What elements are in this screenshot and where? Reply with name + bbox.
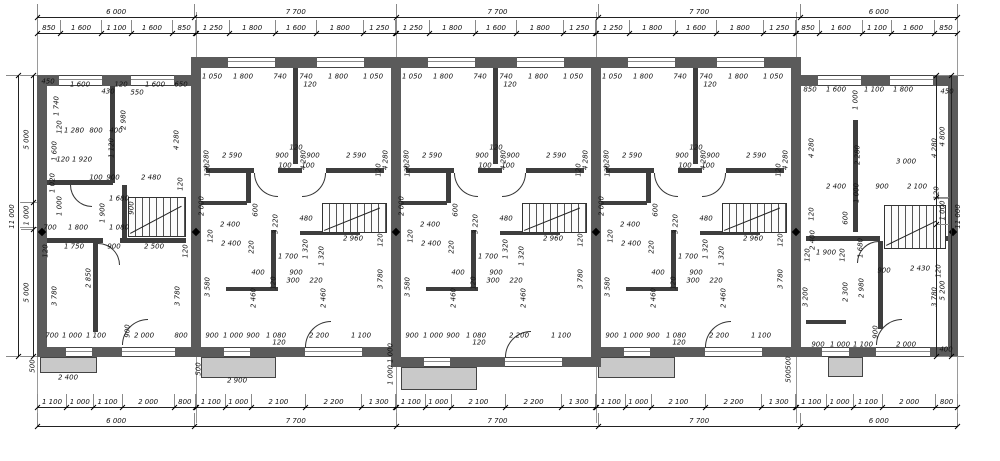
dim-segment: 1 800 bbox=[516, 20, 562, 33]
dim-segment: 7 700 bbox=[598, 413, 800, 426]
dim-label: 120 bbox=[205, 163, 212, 176]
dim-chain-top-unit2: 1 2501 8001 6001 8001 250 bbox=[196, 20, 396, 34]
dim-label: 3 580 bbox=[405, 277, 412, 297]
dim-label: 2 430 bbox=[910, 266, 930, 273]
dim-label: 120 bbox=[303, 82, 316, 89]
dim-label: 900 bbox=[475, 153, 488, 160]
dim-label: 800 bbox=[89, 128, 102, 135]
dim-label: 480 bbox=[699, 216, 712, 223]
dim-label: 900 bbox=[689, 270, 702, 277]
dim-label: 2 960 bbox=[543, 236, 563, 243]
dim-segment: 1 800 bbox=[316, 20, 362, 33]
dim-label: 600 bbox=[253, 203, 260, 216]
dim-label: 1 320 bbox=[319, 246, 326, 266]
dim-segment: 1 250 bbox=[363, 20, 397, 33]
dim-segment: 2 200 bbox=[305, 394, 361, 407]
dim-label: 2 400 bbox=[420, 222, 440, 229]
dim-label: 1 700 bbox=[678, 254, 698, 261]
dim-label: 500 bbox=[786, 369, 793, 382]
dim-segment: 7 700 bbox=[598, 4, 800, 17]
dim-segment: 1 100 bbox=[596, 394, 625, 407]
dim-label: 1 800 bbox=[233, 74, 253, 81]
dim-label: 900 bbox=[706, 153, 719, 160]
dim-label: 450 bbox=[41, 79, 54, 86]
dim-label: 2 460 bbox=[251, 288, 258, 308]
dim-segment: 850 bbox=[37, 20, 60, 33]
dim-label: 740 bbox=[473, 74, 486, 81]
dim-label: 1 680 bbox=[109, 196, 129, 203]
dim-label: 900 bbox=[107, 244, 120, 251]
door-arc bbox=[254, 173, 278, 197]
dim-label: 2 460 bbox=[451, 288, 458, 308]
dim-label: 120 bbox=[778, 233, 785, 246]
dim-label: 1 000 bbox=[62, 333, 82, 340]
dim-label: 2 400 bbox=[220, 222, 240, 229]
dim-label: 1 900 bbox=[816, 250, 836, 257]
dim-label: 900 bbox=[605, 333, 618, 340]
dim-segment: 1 100 bbox=[396, 394, 425, 407]
dim-label: 600 bbox=[843, 211, 850, 224]
dim-label: 1 100 bbox=[351, 333, 371, 340]
dim-label: 2 400 bbox=[826, 184, 846, 191]
dim-label: 1 800 bbox=[68, 225, 88, 232]
dim-label: 120 bbox=[809, 207, 816, 220]
dim-label: 120 bbox=[576, 163, 583, 176]
dim-label: 300 bbox=[486, 278, 499, 285]
dim-label: 2 000 bbox=[134, 333, 154, 340]
dim-label: 120 bbox=[405, 163, 412, 176]
dim-label: 450 bbox=[940, 89, 953, 96]
dim-segment: 1 600 bbox=[819, 20, 862, 33]
dim-label: 1 320 bbox=[503, 239, 510, 259]
dim-label: 2 460 bbox=[721, 288, 728, 308]
dim-label: 2 500 bbox=[144, 244, 164, 251]
dim-label: 120 bbox=[503, 82, 516, 89]
dim-label: 3 580 bbox=[605, 277, 612, 297]
dim-label: 900 bbox=[129, 201, 136, 214]
dim-label: 1 000 bbox=[853, 90, 860, 110]
door-arc bbox=[654, 173, 678, 197]
porch-unit3 bbox=[401, 367, 477, 390]
dim-label: 400 bbox=[939, 347, 952, 354]
dim-label: 120 bbox=[408, 229, 415, 242]
wall-top-mid bbox=[196, 57, 796, 68]
dim-label: 220 bbox=[249, 240, 256, 253]
dim-label: 1 100 bbox=[853, 342, 873, 349]
porch-unit1 bbox=[40, 357, 97, 373]
dim-label: 400 bbox=[451, 270, 464, 277]
dim-label: 2 590 bbox=[422, 153, 442, 160]
dim-label: 2 400 bbox=[620, 222, 640, 229]
dim-label: 3 580 bbox=[205, 277, 212, 297]
dim-label: 1 000 bbox=[830, 342, 850, 349]
dim-label: 120 bbox=[605, 163, 612, 176]
dim-label: 480 bbox=[299, 216, 312, 223]
rear-door bbox=[705, 347, 762, 357]
dim-label: 1 800 bbox=[728, 74, 748, 81]
dim-segment: 1 300 bbox=[761, 394, 796, 407]
dim-label: 1 700 bbox=[478, 254, 498, 261]
dim-label: 1 100 bbox=[864, 87, 884, 94]
dim-segment: 7 700 bbox=[194, 4, 396, 17]
dim-label: 220 bbox=[309, 278, 322, 285]
dim-label: 1 000 bbox=[57, 196, 64, 216]
dim-label: 900 bbox=[446, 333, 459, 340]
dim-segment: 1 250 bbox=[396, 20, 429, 33]
dim-label: 2 400 bbox=[621, 241, 641, 248]
window bbox=[317, 57, 364, 68]
dim-label: 700 bbox=[43, 225, 56, 232]
dim-label: 4 280 bbox=[174, 130, 181, 150]
dim-segment: 7 700 bbox=[396, 413, 598, 426]
dim-label: 1 120 bbox=[109, 138, 116, 158]
dim-label: 3 780 bbox=[578, 269, 585, 289]
dim-label: 120 bbox=[689, 145, 702, 152]
dim-label: 2 850 bbox=[86, 268, 93, 288]
dim-segment: 1 100 bbox=[101, 20, 130, 33]
dim-label: 2 460 bbox=[321, 288, 328, 308]
door-arc bbox=[70, 185, 92, 207]
staircase-unit1 bbox=[128, 197, 186, 237]
window bbox=[717, 57, 764, 68]
dim-label: 900 bbox=[675, 153, 688, 160]
partition bbox=[806, 236, 880, 241]
dim-label: 100 bbox=[478, 163, 491, 170]
dim-label: 900 bbox=[306, 153, 319, 160]
dim-segment: 1 800 bbox=[229, 20, 275, 33]
dim-label: 2 590 bbox=[346, 153, 366, 160]
partition bbox=[246, 173, 251, 203]
dim-chain-right-inner: 4 8001 0005 200 bbox=[936, 75, 949, 357]
dim-label: 120 bbox=[472, 340, 485, 347]
dim-segment: 6 000 bbox=[800, 413, 958, 426]
dim-label: 500 bbox=[30, 359, 37, 372]
dim-label: 120 bbox=[776, 163, 783, 176]
dim-segment: 1 600 bbox=[131, 20, 173, 33]
dim-segment: 1 600 bbox=[475, 20, 516, 33]
dim-label: 1 680 bbox=[858, 238, 865, 258]
dim-label: 400 bbox=[251, 270, 264, 277]
dim-label: 120 bbox=[936, 264, 943, 277]
dim-label: 740 bbox=[299, 74, 312, 81]
dim-label: 600 bbox=[453, 203, 460, 216]
dim-segment: 5 000 bbox=[21, 229, 33, 357]
partition bbox=[646, 173, 651, 203]
dim-segment: 1 000 bbox=[21, 202, 33, 228]
dim-label: 1 000 bbox=[423, 333, 443, 340]
dim-label: 2 000 bbox=[199, 196, 206, 216]
dim-label: 1 050 bbox=[363, 74, 383, 81]
dim-label: 900 bbox=[106, 175, 119, 182]
dim-label: 120 bbox=[608, 229, 615, 242]
dim-label: 900 bbox=[506, 153, 519, 160]
dim-label: 2 400 bbox=[221, 241, 241, 248]
dim-segment: 1 300 bbox=[561, 394, 596, 407]
window bbox=[228, 57, 275, 68]
dim-label: 100 bbox=[701, 163, 714, 170]
dim-label: 1 900 bbox=[100, 203, 107, 223]
rear-door bbox=[305, 347, 362, 357]
dim-label: 120 bbox=[272, 340, 285, 347]
dim-label: 2 400 bbox=[421, 241, 441, 248]
dim-label: 900 bbox=[289, 270, 302, 277]
dim-label: 2 590 bbox=[622, 153, 642, 160]
dim-label: 100 bbox=[89, 175, 102, 182]
dim-label: 1 600 bbox=[70, 82, 90, 89]
dim-label: 900 bbox=[646, 333, 659, 340]
dim-label: 120 bbox=[378, 233, 385, 246]
dim-label: 400 bbox=[109, 128, 122, 135]
dim-segment: 850 bbox=[934, 20, 958, 33]
dim-label: 550 bbox=[130, 90, 143, 97]
partition bbox=[853, 120, 858, 232]
dim-label: 2 200 bbox=[309, 333, 329, 340]
dim-segment: 1 300 bbox=[361, 394, 396, 407]
rear-door bbox=[505, 357, 562, 367]
partition bbox=[806, 320, 846, 324]
dim-label: 2 000 bbox=[599, 196, 606, 216]
dim-label: 3 200 bbox=[803, 287, 810, 307]
dim-chain-bottom-unit1: 1 1001 0001 1002 000800 bbox=[37, 394, 196, 408]
dim-label: 2 300 bbox=[843, 282, 850, 302]
dim-label: 1 920 bbox=[72, 157, 92, 164]
window bbox=[628, 57, 675, 68]
dim-label: 3 780 bbox=[175, 286, 182, 306]
dim-segment: 1 250 bbox=[196, 20, 229, 33]
dim-label: 740 bbox=[273, 74, 286, 81]
dim-label: 1 320 bbox=[703, 239, 710, 259]
dim-label: 2 960 bbox=[743, 236, 763, 243]
dim-label: 1 000 bbox=[854, 183, 861, 203]
dim-label: 900 bbox=[246, 333, 259, 340]
dim-label: 2 280 bbox=[855, 145, 862, 165]
dim-label: 220 bbox=[649, 240, 656, 253]
dim-label: 500 bbox=[786, 356, 793, 369]
dim-segment: 800 bbox=[174, 394, 196, 407]
dim-label: 900 bbox=[125, 324, 132, 337]
rear-window bbox=[224, 347, 250, 357]
floor-plan-drawing: 6 0007 7007 7007 7006 000 8501 6001 1001… bbox=[0, 0, 1000, 461]
door-arc bbox=[302, 173, 326, 197]
dim-label: 1 020 bbox=[50, 173, 57, 193]
window bbox=[890, 75, 933, 86]
dim-chain-top-unit4: 1 2501 8001 6001 8001 250 bbox=[596, 20, 796, 34]
dim-label: 3 780 bbox=[778, 269, 785, 289]
dim-segment: 6 000 bbox=[37, 4, 194, 17]
dim-label: 4 280 bbox=[809, 138, 816, 158]
dim-label: 2 200 bbox=[709, 333, 729, 340]
dim-label: 1 100 bbox=[86, 333, 106, 340]
dim-label: 4 280 bbox=[932, 138, 939, 158]
dim-label: 120 bbox=[57, 120, 64, 133]
dim-segment: 1 100 bbox=[196, 394, 225, 407]
dim-label: 3 220 bbox=[273, 214, 280, 234]
dim-label: 1 050 bbox=[402, 74, 422, 81]
dim-label: 120 bbox=[271, 276, 278, 289]
dim-label: 120 bbox=[56, 157, 69, 164]
porch-unit4 bbox=[598, 357, 675, 378]
dim-segment: 1 600 bbox=[891, 20, 934, 33]
dim-label: 700 bbox=[45, 333, 58, 340]
dim-segment: 2 200 bbox=[705, 394, 761, 407]
dim-label: 220 bbox=[449, 240, 456, 253]
dim-label: 1 600 bbox=[145, 82, 165, 89]
dim-segment: 2 000 bbox=[882, 394, 935, 407]
porch-unit2 bbox=[201, 357, 276, 378]
dim-segment: 2 200 bbox=[505, 394, 561, 407]
dim-segment: 1 000 bbox=[425, 394, 451, 407]
dim-label: 900 bbox=[877, 268, 890, 275]
dim-segment: 850 bbox=[172, 20, 196, 33]
dim-segment: 1 000 bbox=[826, 394, 853, 407]
dim-label: 1 050 bbox=[563, 74, 583, 81]
dim-label: 900 bbox=[405, 333, 418, 340]
wall-left bbox=[37, 75, 47, 357]
dim-label: 1 080 bbox=[109, 225, 129, 232]
dim-label: 2 400 bbox=[810, 230, 817, 250]
dim-label: 120 bbox=[43, 244, 50, 257]
dim-label: 4 280 bbox=[383, 150, 390, 170]
door-arc bbox=[502, 173, 526, 197]
dim-chain-right-outer: 11 000 bbox=[951, 75, 964, 357]
dim-label: 2 960 bbox=[343, 236, 363, 243]
dim-label: 1 320 bbox=[519, 246, 526, 266]
dim-segment: 1 600 bbox=[60, 20, 102, 33]
dim-label: 1 050 bbox=[602, 74, 622, 81]
dim-label: 1 700 bbox=[278, 254, 298, 261]
partition bbox=[401, 201, 447, 205]
dim-chain-bottom-unit3: 1 1001 0002 1002 2001 300 bbox=[396, 394, 596, 408]
dim-label: 4 280 bbox=[783, 150, 790, 170]
dim-label: 2 590 bbox=[222, 153, 242, 160]
dim-label: 2 000 bbox=[399, 196, 406, 216]
dim-label: 1 100 bbox=[751, 333, 771, 340]
dim-label: 120 bbox=[672, 340, 685, 347]
partition bbox=[201, 201, 247, 205]
window bbox=[428, 57, 475, 68]
dim-chain-top-totals: 6 0007 7007 7007 7006 000 bbox=[37, 4, 958, 18]
dim-label: 120 bbox=[840, 248, 847, 261]
dim-label: 3 780 bbox=[932, 287, 939, 307]
dim-label: 2 460 bbox=[651, 288, 658, 308]
dim-label: 120 bbox=[289, 145, 302, 152]
dim-chain-top-unit1: 8501 6001 1001 600850 bbox=[37, 20, 196, 34]
dim-label: 1 320 bbox=[303, 239, 310, 259]
dim-segment: 2 100 bbox=[451, 394, 505, 407]
dim-segment: 2 100 bbox=[251, 394, 305, 407]
dim-label: 1 800 bbox=[893, 87, 913, 94]
dim-label: 120 bbox=[183, 244, 190, 257]
dim-segment: 1 000 bbox=[937, 197, 949, 223]
dim-label: 900 bbox=[275, 153, 288, 160]
dim-label: 120 bbox=[934, 186, 941, 199]
dim-label: 100 bbox=[278, 163, 291, 170]
dim-label: 100 bbox=[678, 163, 691, 170]
dim-label: 1 100 bbox=[551, 333, 571, 340]
partition bbox=[601, 201, 647, 205]
rear-window bbox=[66, 347, 92, 357]
partition bbox=[446, 173, 451, 203]
dim-segment: 1 250 bbox=[596, 20, 629, 33]
dim-segment: 1 100 bbox=[37, 394, 66, 407]
dim-label: 120 bbox=[178, 177, 185, 190]
dim-label: 2 480 bbox=[141, 175, 161, 182]
dim-segment: 1 100 bbox=[796, 394, 826, 407]
dim-label: 900 bbox=[811, 342, 824, 349]
window bbox=[818, 75, 861, 86]
dim-label: 1 280 bbox=[64, 128, 84, 135]
dim-label: 1 050 bbox=[763, 74, 783, 81]
dim-label: 220 bbox=[509, 278, 522, 285]
dim-chain-left-outer: 11 000 bbox=[6, 75, 19, 357]
dim-segment: 1 800 bbox=[716, 20, 762, 33]
dim-label: 900 bbox=[489, 270, 502, 277]
partition bbox=[110, 86, 115, 183]
dim-segment: 11 000 bbox=[952, 75, 964, 357]
dim-label: 600 bbox=[653, 203, 660, 216]
dim-label: 220 bbox=[709, 278, 722, 285]
dim-label: 1 800 bbox=[528, 74, 548, 81]
dim-label: 120 bbox=[703, 82, 716, 89]
dim-chain-bottom-unit4: 1 1001 0002 1002 2001 300 bbox=[596, 394, 796, 408]
dim-chain-top-unit5: 8501 6001 1001 600850 bbox=[796, 20, 958, 34]
dim-label: 2 590 bbox=[746, 153, 766, 160]
dim-segment: 850 bbox=[796, 20, 819, 33]
dim-chain-bottom-unit5: 1 1001 0001 1002 000800 bbox=[796, 394, 958, 408]
dim-label: 1 800 bbox=[328, 74, 348, 81]
dim-label: 1 000 bbox=[388, 343, 395, 363]
dim-label: 900 bbox=[205, 333, 218, 340]
dim-label: 1 600 bbox=[826, 87, 846, 94]
dim-chain-left-inner: 5 0001 0005 000 bbox=[21, 75, 34, 357]
porch-unit5 bbox=[828, 357, 863, 377]
dim-label: 800 bbox=[174, 333, 187, 340]
dim-label: 900 bbox=[873, 325, 880, 338]
dim-label: 1 320 bbox=[719, 246, 726, 266]
rear-window bbox=[822, 347, 849, 357]
dim-label: 900 bbox=[875, 184, 888, 191]
dim-label: 1 000 bbox=[223, 333, 243, 340]
dim-segment: 1 250 bbox=[563, 20, 597, 33]
dim-label: 3 000 bbox=[896, 159, 916, 166]
dim-segment: 5 000 bbox=[21, 75, 33, 202]
dim-segment: 1 600 bbox=[675, 20, 716, 33]
dim-label: 400 bbox=[651, 270, 664, 277]
door-arc bbox=[702, 173, 726, 197]
dim-label: 1 800 bbox=[433, 74, 453, 81]
dim-chain-bottom-unit2: 1 1001 0002 1002 2001 300 bbox=[196, 394, 396, 408]
dim-label: 1 800 bbox=[633, 74, 653, 81]
dim-label: 480 bbox=[499, 216, 512, 223]
dim-label: 1 750 bbox=[64, 244, 84, 251]
dim-label: 3 780 bbox=[52, 286, 59, 306]
dim-label: 2 590 bbox=[546, 153, 566, 160]
dim-label: 2 000 bbox=[896, 342, 916, 349]
dim-segment: 1 600 bbox=[275, 20, 316, 33]
dim-label: 500 bbox=[196, 362, 203, 375]
dim-label: 850 bbox=[803, 87, 816, 94]
dim-segment: 5 200 bbox=[937, 224, 949, 357]
dim-label: 2 100 bbox=[907, 184, 927, 191]
window bbox=[517, 57, 564, 68]
dim-label: 2 460 bbox=[521, 288, 528, 308]
party-wall-4 bbox=[791, 57, 801, 357]
dim-segment: 6 000 bbox=[37, 413, 194, 426]
dim-segment: 1 100 bbox=[862, 20, 892, 33]
dim-segment: 1 100 bbox=[93, 394, 122, 407]
dim-segment: 2 000 bbox=[122, 394, 174, 407]
dim-segment: 1 000 bbox=[66, 394, 93, 407]
